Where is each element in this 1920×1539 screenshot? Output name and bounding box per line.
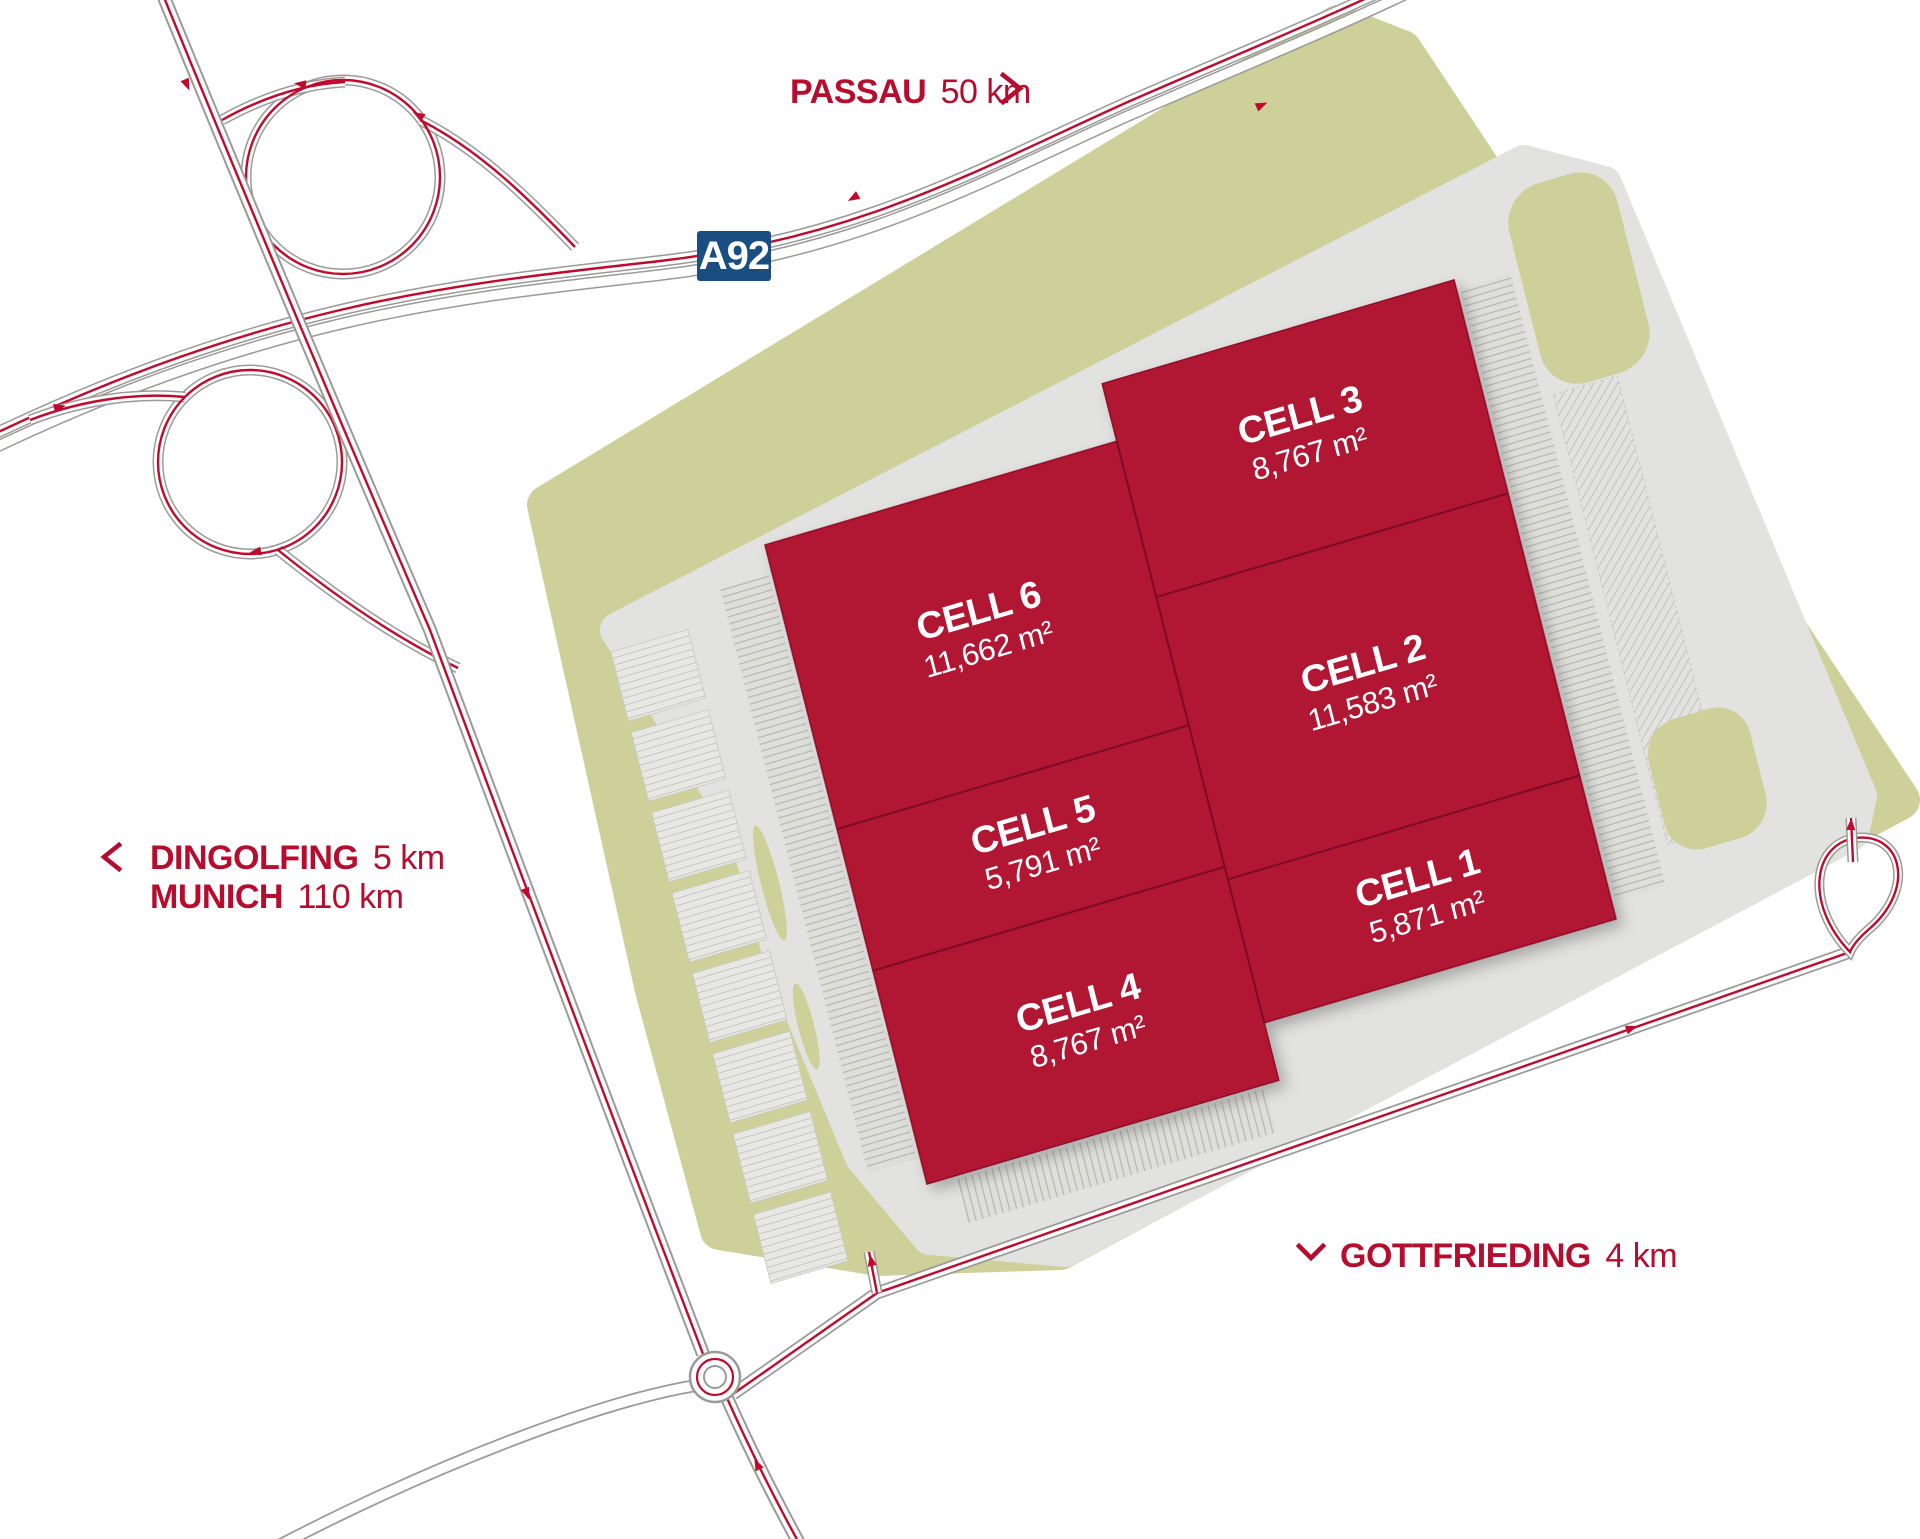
- gottfrieding-city: GOTTFRIEDING: [1340, 1237, 1591, 1275]
- dingolfing-distance: 5 km: [373, 839, 445, 877]
- svg-text:MUNICH 110 km: MUNICH 110 km: [150, 878, 403, 916]
- gottfrieding-distance: 4 km: [1605, 1237, 1677, 1275]
- label-passau: PASSAU 50 km: [790, 73, 1031, 111]
- interchange-cloverleaf: [30, 79, 575, 668]
- site-plan-map: CELL 6 11,662 m² CELL 5 5,791 m² CELL 4 …: [0, 0, 1920, 1539]
- a92-badge-label: A92: [699, 234, 769, 278]
- svg-text:PASSAU 50 km: PASSAU 50 km: [790, 73, 1031, 111]
- chevron-left-icon: [104, 845, 119, 869]
- chevron-down-icon: [1299, 1246, 1323, 1258]
- munich-city: MUNICH: [150, 878, 283, 916]
- passau-city: PASSAU: [790, 73, 926, 111]
- label-gottfrieding: GOTTFRIEDING 4 km: [1299, 1237, 1677, 1275]
- label-dingolfing-munich: DINGOLFING 5 km MUNICH 110 km: [104, 839, 445, 916]
- a92-badge: A92: [697, 231, 771, 281]
- roundabout: [690, 1352, 740, 1402]
- dingolfing-city: DINGOLFING: [150, 839, 358, 877]
- svg-text:GOTTFRIEDING 4 km: GOTTFRIEDING 4 km: [1340, 1237, 1677, 1275]
- motorway-arrow-southwest: [846, 191, 861, 205]
- munich-distance: 110 km: [297, 878, 403, 916]
- svg-text:DINGOLFING 5 km: DINGOLFING 5 km: [150, 839, 445, 877]
